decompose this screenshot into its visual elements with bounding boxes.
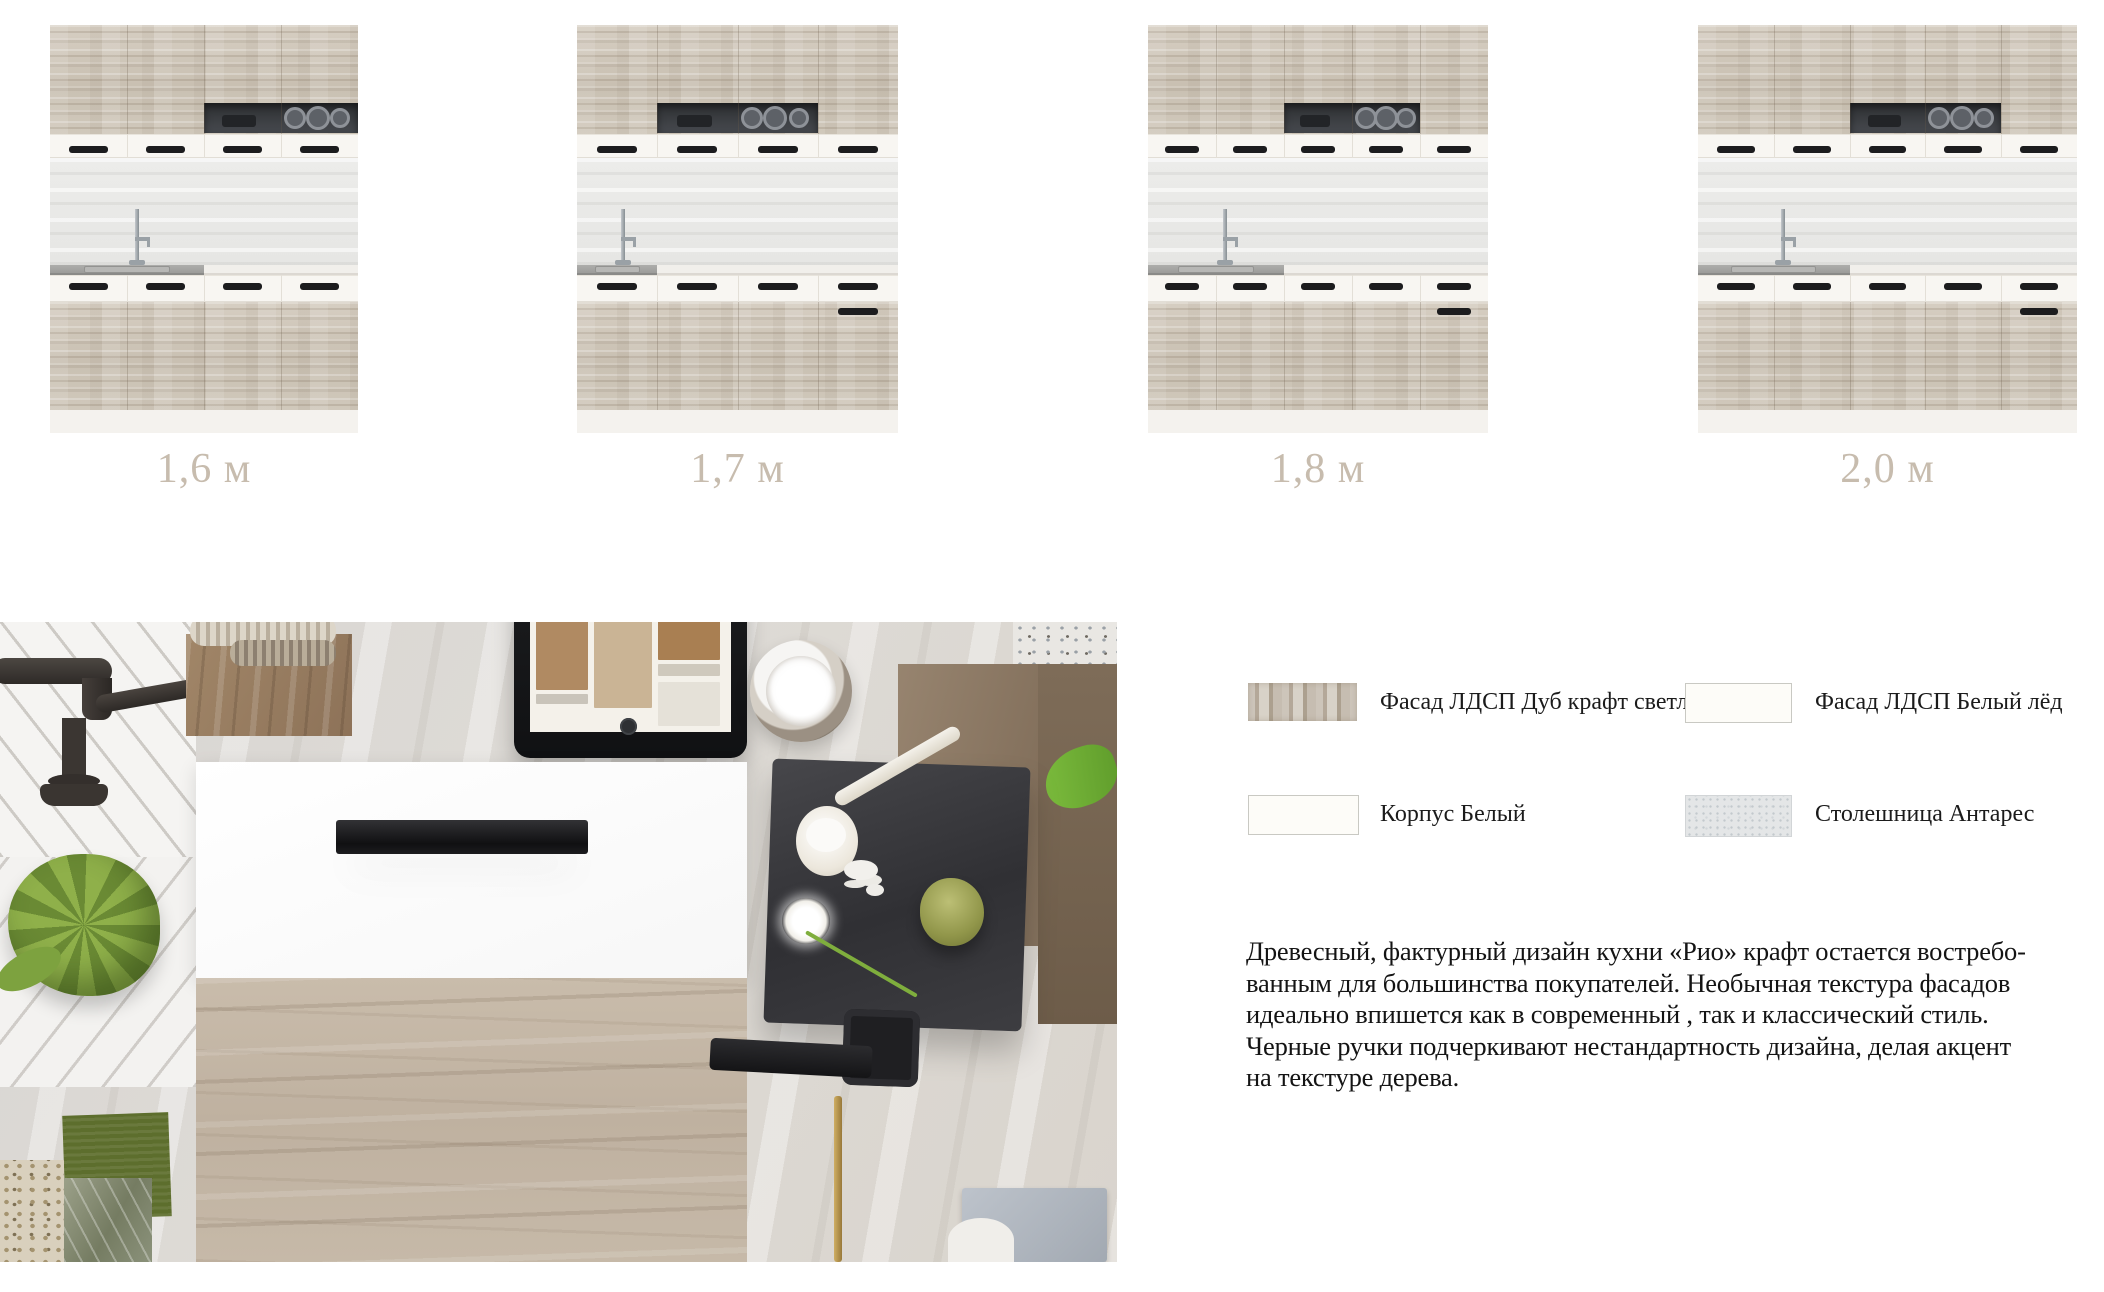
slate-board — [763, 759, 1030, 1032]
kitchen-render-2-0 — [1698, 25, 2077, 433]
white-flower — [782, 898, 830, 944]
salt-spill — [866, 884, 884, 896]
size-label: 2,0 м — [1698, 443, 2077, 495]
kitchen-render-1-6 — [50, 25, 358, 433]
kitchen-size-option-1-8[interactable]: 1,8 м — [1148, 25, 1488, 433]
onyx-sample — [64, 1178, 152, 1262]
swatch-white-body — [1248, 795, 1359, 835]
black-cabinet-handle — [336, 820, 588, 854]
tablet-home-button — [620, 718, 637, 735]
kitchen-size-option-2-0[interactable]: 2,0 м — [1698, 25, 2077, 433]
swatch-antares — [1685, 795, 1792, 837]
kitchen-render-1-7 — [577, 25, 898, 433]
kitchen-size-option-1-7[interactable]: 1,7 м — [577, 25, 898, 433]
material-label: Столешница Антарес — [1815, 795, 2034, 833]
terrazzo-sample — [0, 1160, 64, 1262]
terrazzo-sample — [1013, 622, 1117, 670]
product-description: Древесный, фактурный дизайн кухни «Рио» … — [1246, 936, 2104, 1094]
salt-spill — [844, 860, 878, 880]
size-label: 1,8 м — [1148, 443, 1488, 495]
material-label: Фасад ЛДСП Белый лёд — [1815, 683, 2063, 721]
bronze-panel — [1038, 664, 1117, 1024]
tablet-screen — [530, 622, 731, 732]
swatch-oak-craft — [1248, 683, 1357, 721]
salt-bowl-contents — [766, 656, 836, 726]
material-item-facade-oak: Фасад ЛДСП Дуб крафт светл. — [1248, 683, 1678, 723]
material-label: Фасад ЛДСП Дуб крафт светл. — [1380, 683, 1694, 721]
fabric-roll — [230, 640, 336, 666]
size-label: 1,6 м — [50, 443, 358, 495]
kitchen-render-1-8 — [1148, 25, 1488, 433]
white-facade-panel — [196, 762, 747, 978]
black-faucet — [40, 784, 108, 806]
material-item-facade-white-ice: Фасад ЛДСП Белый лёд — [1685, 683, 2104, 723]
kitchen-size-option-1-6[interactable]: 1,6 м — [50, 25, 358, 433]
white-plate-edge — [948, 1218, 1014, 1262]
moodboard-photo — [0, 622, 1117, 1262]
swatch-white-ice — [1685, 683, 1792, 723]
spoon-salt — [806, 818, 846, 852]
artichoke-bud — [920, 878, 984, 946]
material-item-countertop-antares: Столешница Антарес — [1685, 795, 2104, 835]
brass-stick — [834, 1096, 842, 1262]
material-label: Корпус Белый — [1380, 795, 1526, 833]
material-item-body-white: Корпус Белый — [1248, 795, 1678, 835]
size-label: 1,7 м — [577, 443, 898, 495]
oak-facade-panel — [196, 978, 747, 1262]
